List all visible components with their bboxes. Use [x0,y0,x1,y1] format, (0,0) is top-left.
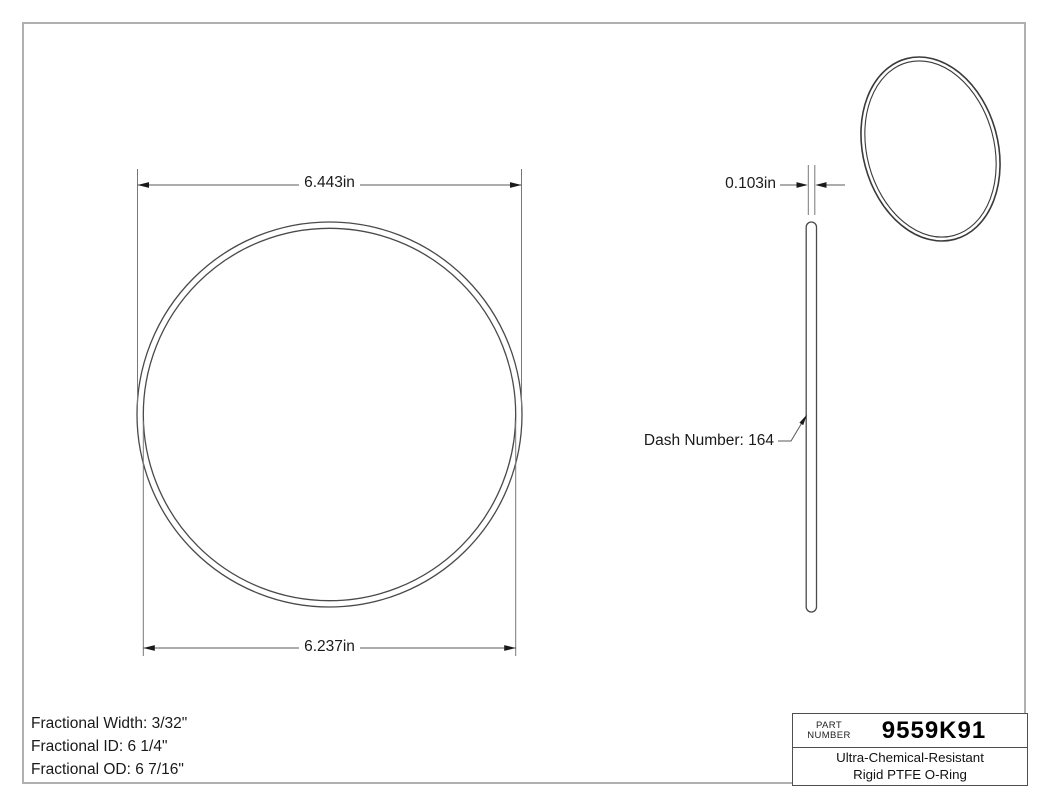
part-description-line2: Rigid PTFE O-Ring [853,767,967,784]
part-description-line1: Ultra-Chemical-Resistant [836,750,984,767]
od-dimension [138,169,522,408]
fractional-id-text: Fractional ID: 6 1/4" [31,735,187,758]
fractional-od-text: Fractional OD: 6 7/16" [31,758,187,781]
width-arrow-left [797,182,808,188]
width-arrow-right [815,182,826,188]
oring-iso-outer-ellipse [841,41,1020,257]
od-arrow-left [138,182,150,188]
id-dimension-label: 6.237in [301,638,358,656]
dash-number-label: Dash Number: 164 [641,432,777,450]
oring-iso-inner-ellipse [846,46,1015,252]
id-arrow-right [504,645,516,651]
part-number-label: PART NUMBER [793,721,855,741]
drawing-canvas [0,0,1050,811]
od-dimension-label: 6.443in [301,174,358,192]
part-number-row: PART NUMBER 9559K91 [793,714,1027,748]
od-arrow-right [510,182,522,188]
fractional-width-text: Fractional Width: 3/32" [31,712,187,735]
fractional-specs: Fractional Width: 3/32" Fractional ID: 6… [31,712,187,781]
oring-front-inner-circle [143,228,515,600]
id-arrow-left [143,645,155,651]
title-block: PART NUMBER 9559K91 Ultra-Chemical-Resis… [792,713,1028,786]
part-description: Ultra-Chemical-Resistant Rigid PTFE O-Ri… [793,748,1027,785]
oring-side-view [806,222,816,612]
id-dimension [143,421,515,656]
dash-leader [778,415,807,442]
drawing-sheet: 6.443in 6.237in 0.103in Dash Number: 164… [0,0,1050,811]
part-number-value: 9559K91 [855,717,1027,745]
oring-front-view [137,222,522,607]
oring-iso-view [841,41,1020,257]
width-dimension-label: 0.103in [722,175,779,193]
width-dimension [780,165,845,215]
part-number-label-line1: PART [803,721,855,731]
oring-front-outer-circle [137,222,522,607]
oring-side-profile [806,222,816,612]
part-number-label-line2: NUMBER [803,731,855,741]
